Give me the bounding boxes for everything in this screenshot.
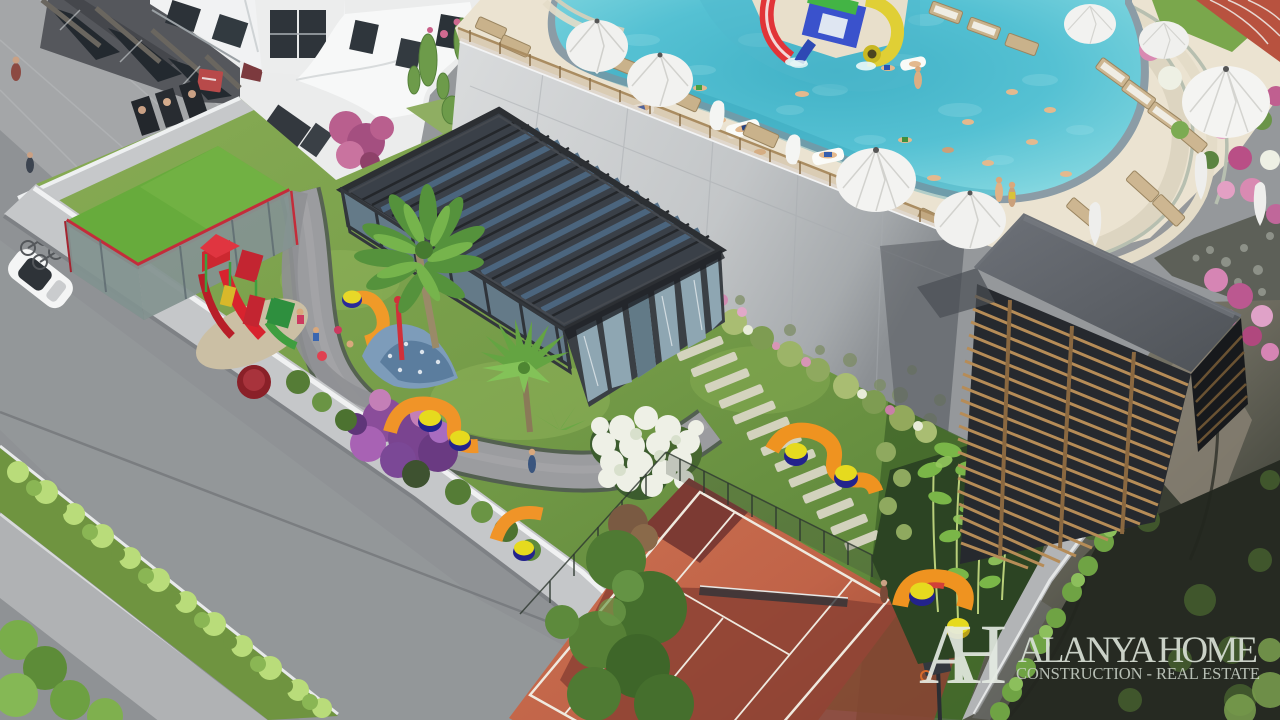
svg-text:CONSTRUCTION - REAL ESTATE: CONSTRUCTION - REAL ESTATE bbox=[1016, 664, 1260, 683]
svg-text:H: H bbox=[945, 606, 1007, 702]
